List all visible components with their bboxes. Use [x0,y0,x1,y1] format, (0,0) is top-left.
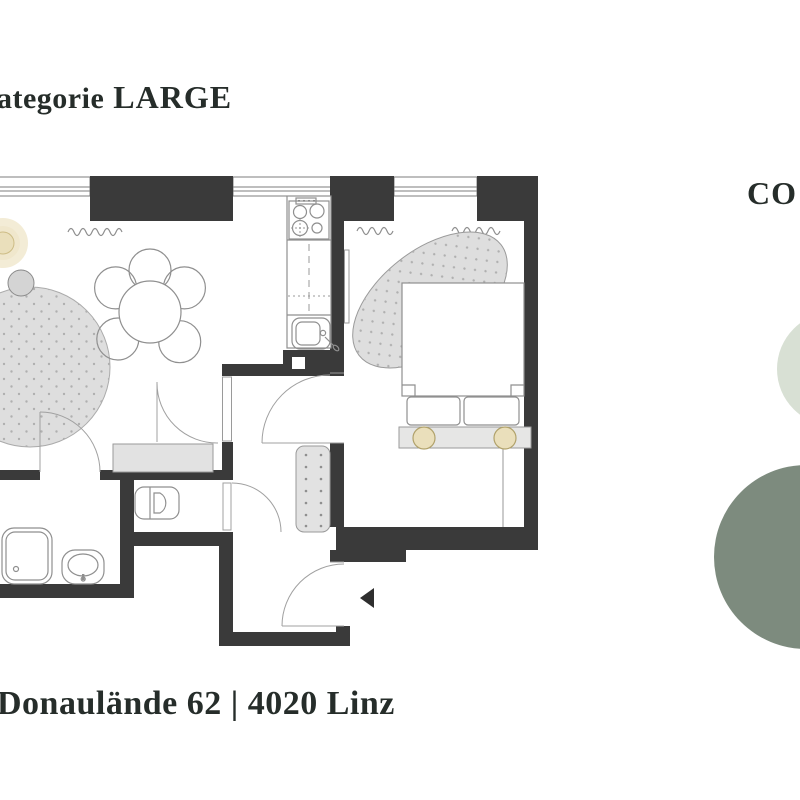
bedside-lamp [413,427,435,449]
accent-circle-light [777,312,800,426]
page-title: ategorieLARGE [0,79,232,115]
dining-table [119,281,181,343]
round-rug [0,287,110,447]
address-label: Donaulände 62 | 4020 Linz [0,685,395,722]
window-living [0,177,90,196]
pillow [464,397,519,425]
floor-lamp [0,218,28,268]
side-table [8,270,34,296]
door-living-hall [157,382,218,443]
floor-plan-canvas: ategorieLARGE Donaulände 62 | 4020 Linz … [0,0,800,800]
toilet [135,487,179,519]
pillow [407,397,460,425]
accent-circle-dark [714,465,800,649]
sideboard [113,444,213,472]
shower [2,528,52,584]
radiator-wave-bedroom-1 [357,228,393,235]
living-room [0,218,213,472]
window-bedroom [394,177,477,196]
entrance-arrow-icon [360,588,374,608]
bath-sink [62,550,104,584]
wc [135,487,179,519]
side-category-label: CO [747,175,797,211]
radiator-wave-living [68,229,122,236]
dining-set [95,249,206,363]
windows [0,177,538,196]
kitchen-wall-notch [292,357,305,369]
hall [296,446,330,532]
bed [399,283,531,449]
bedroom [328,205,531,527]
door-entrance [282,564,344,626]
window-kitchen [233,177,330,196]
page: ategorieLARGE Donaulände 62 | 4020 Linz … [0,0,800,800]
door-bedroom [262,375,330,443]
runner-rug [296,446,330,532]
bathroom [2,528,104,584]
bedside-lamp [494,427,516,449]
door-wc [223,483,281,532]
